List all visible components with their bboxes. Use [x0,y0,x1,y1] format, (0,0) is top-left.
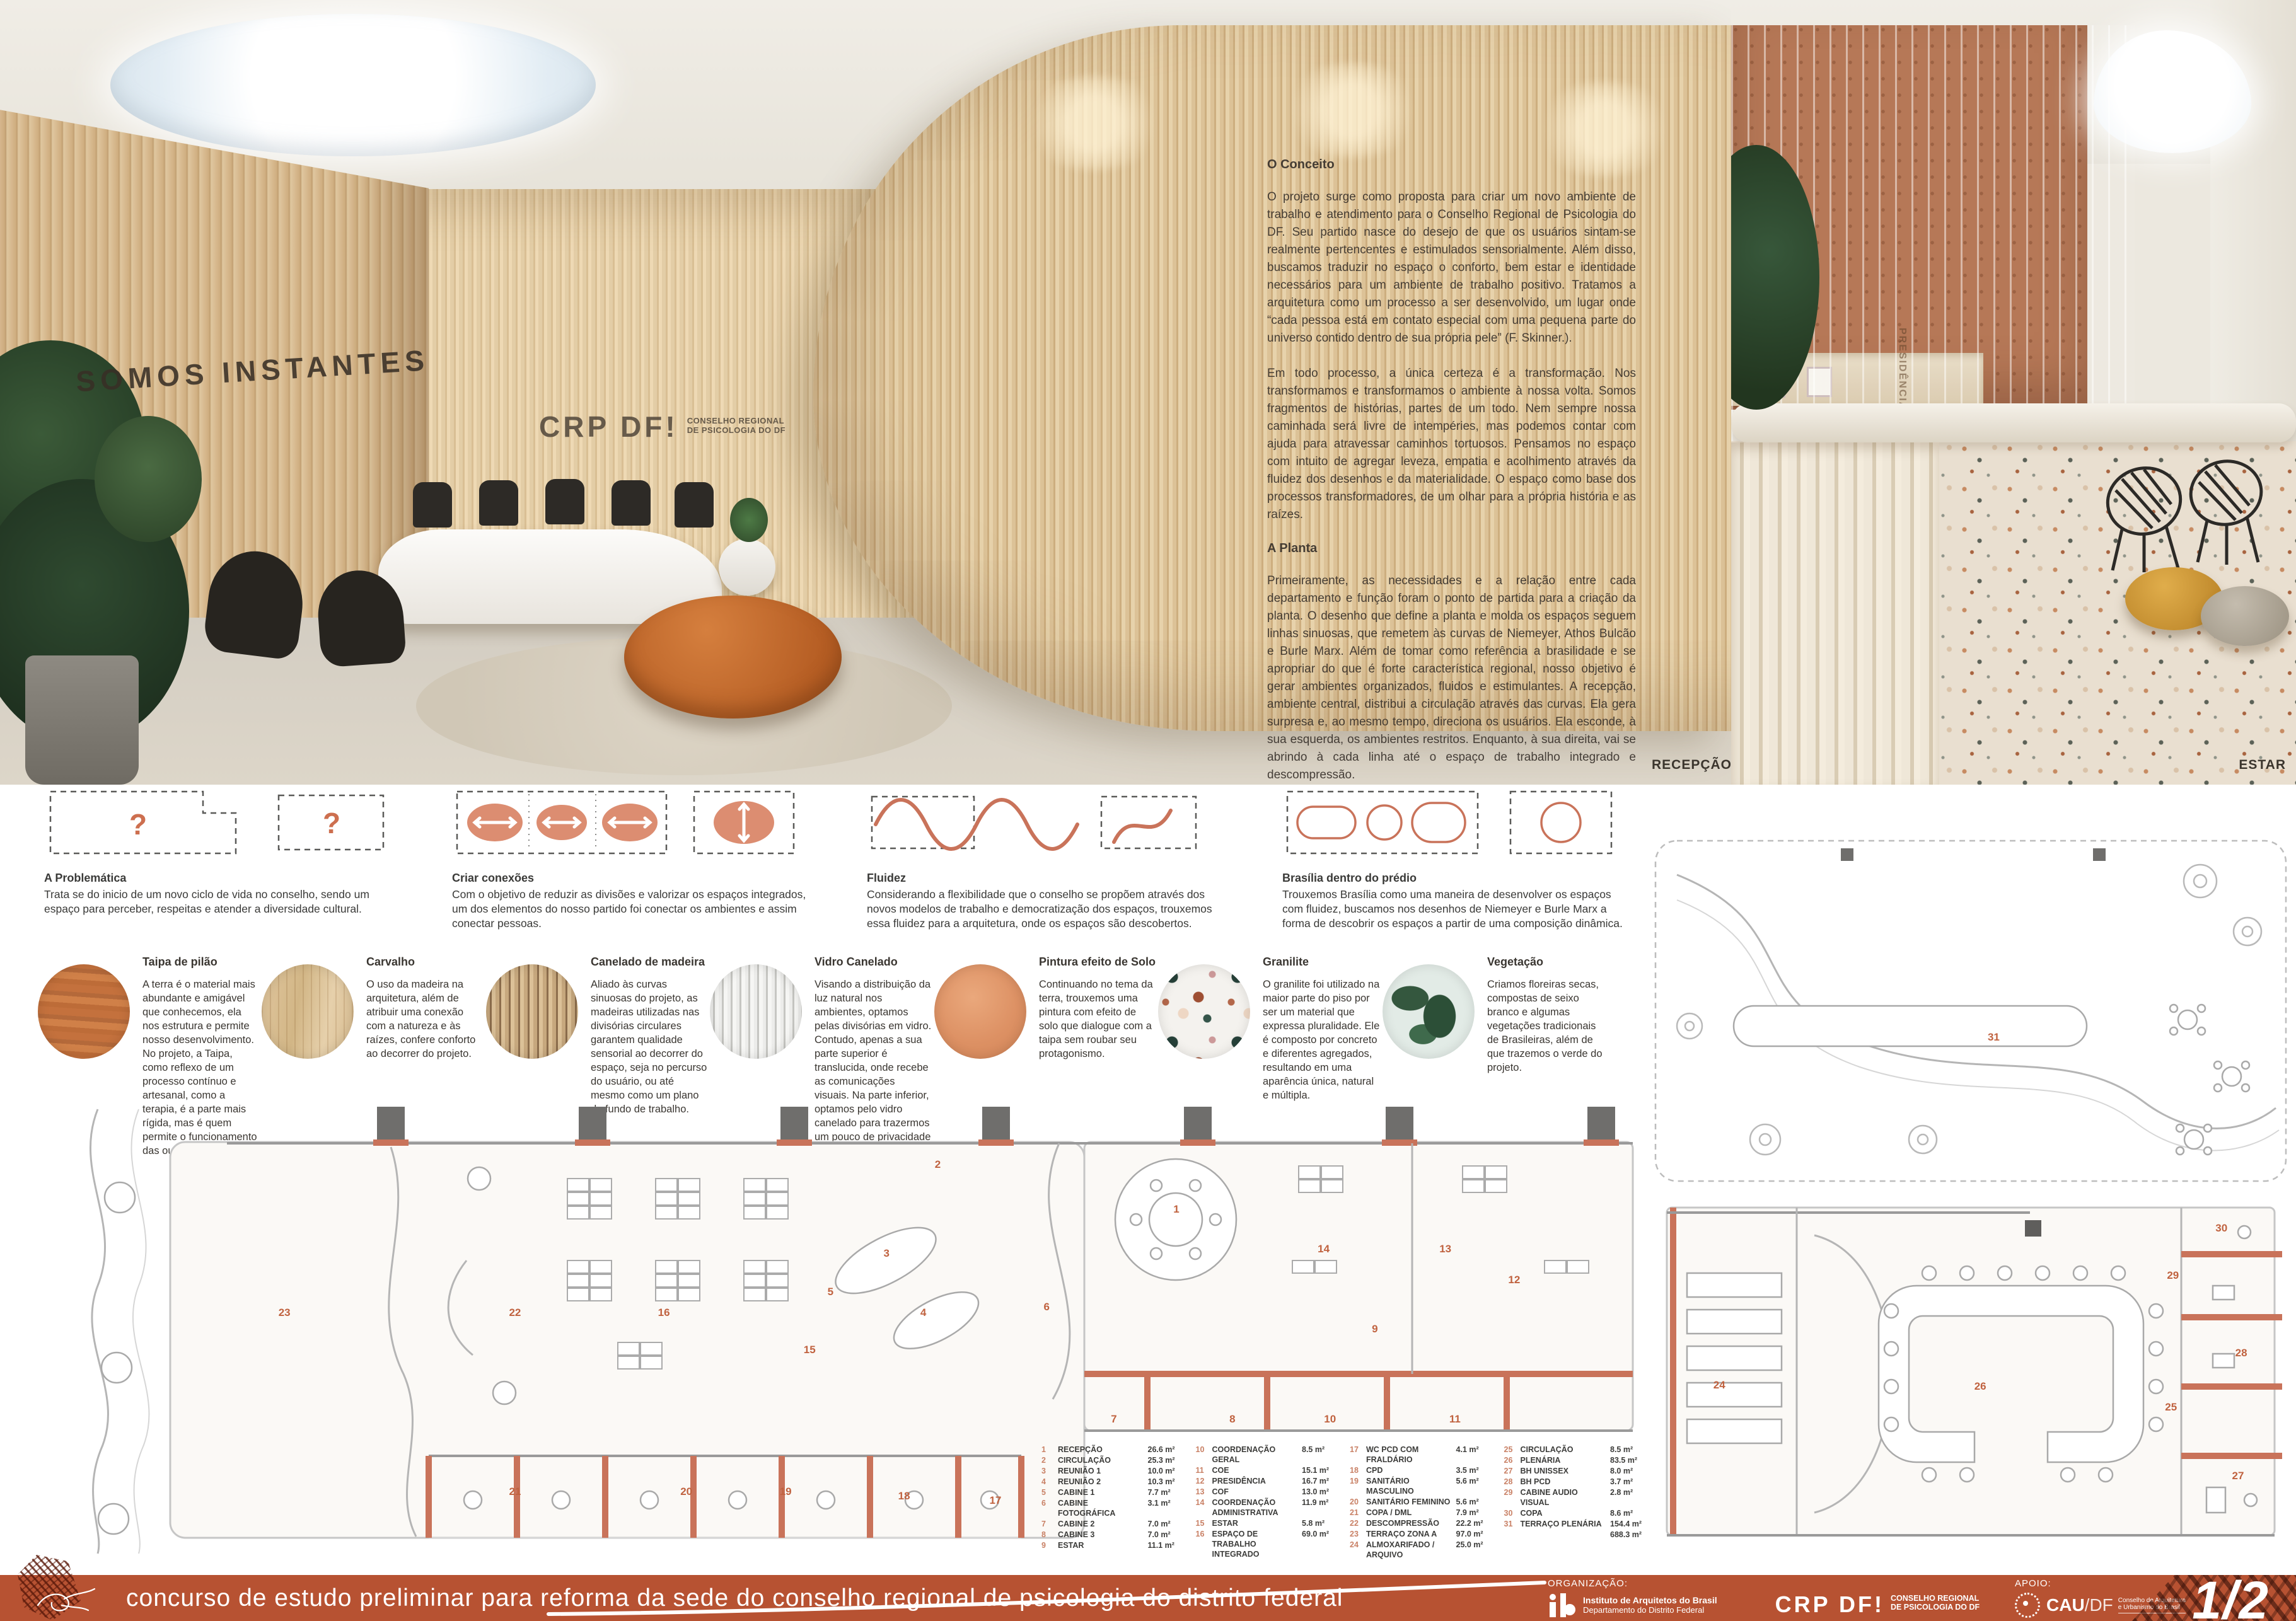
room-number: 7 [1111,1413,1116,1426]
material-swatch-carvalho [262,964,354,1059]
estar-label: ESTAR [2217,758,2286,773]
legend-row: 1RECEPÇÃO26.6 m² [1041,1445,1185,1455]
svg-text:?: ? [129,808,147,841]
room-number: 1 [1173,1203,1179,1216]
legend-row: 25CIRCULAÇÃO8.5 m² [1504,1445,1647,1455]
terrace-plan: 31 [1652,837,2290,1185]
footer-bar: concurso de estudo preliminar para refor… [0,1575,2296,1621]
concept-paragraph: O projeto surge como proposta para criar… [1267,188,1636,347]
ceiling-light-glow [1021,76,1166,170]
diagram-fluidez [867,787,1203,860]
svg-text:?: ? [323,807,340,839]
room-number: 13 [1439,1243,1451,1255]
room-number: 27 [2232,1470,2244,1482]
room-number: 22 [509,1307,521,1319]
concept-title: O Conceito [1267,158,1636,172]
oval-skylight [110,14,596,156]
caption-brasilia: Brasília dentro do prédioTrouxemos Brasí… [1282,871,1633,931]
cau-wordmark: CAU/DF [2046,1595,2113,1615]
iab-name: Instituto de Arquitetos do Brasil [1583,1595,1717,1605]
side-table [719,539,775,596]
legend-row: 29CABINE AUDIO VISUAL2.8 m² [1504,1487,1647,1508]
legend-row: 26PLENÁRIA83.5 m² [1504,1455,1647,1465]
material-title: Vegetação [1487,955,1604,969]
room-number: 5 [828,1286,833,1298]
legend-row: 22DESCOMPRESSÃO22.2 m² [1350,1518,1493,1528]
legend-row: 24ALMOXARIFADO / ARQUIVO25.0 m² [1350,1540,1493,1560]
material-swatch-canelado [486,964,578,1059]
plant-foliage [95,416,202,542]
legend-row: 30COPA8.6 m² [1504,1508,1647,1518]
room-number: 25 [2165,1401,2177,1414]
material-title: Pintura efeito de Solo [1039,955,1156,969]
orange-pouf [624,596,842,718]
material-item: Carvalho O uso da madeira na arquitetura… [262,955,484,1061]
material-text: Continuando no tema da terra, trouxemos … [1039,978,1156,1061]
planta-title: A Planta [1267,541,1636,556]
material-text: Criamos floreiras secas, compostas de se… [1487,978,1604,1075]
material-swatch-vidro [710,964,802,1059]
ceiling-light-glow [1280,63,1425,158]
crp-df-logo-subtext: CONSELHO REGIONAL DE PSICOLOGIA DO DF [687,416,786,435]
room-number: 31 [1988,1031,2000,1044]
curved-railing [1731,403,2296,442]
material-title: Canelado de madeira [591,955,708,969]
reception-chair [675,482,714,528]
room-number: 3 [883,1247,889,1260]
room-number: 26 [1974,1380,1986,1393]
material-text: O granilite foi utilizado na maior parte… [1263,978,1380,1102]
crp-df-wordmark: CRP DF! [1775,1591,1884,1618]
material-text: O uso da madeira na arquitetura, além de… [366,978,484,1061]
legend-column: 17WC PCD COM FRALDÁRIO4.1 m²18CPD3.5 m²1… [1350,1445,1493,1560]
room-number: 16 [658,1307,670,1319]
room-number: 9 [1372,1323,1377,1335]
brush-swoosh [542,1575,1551,1621]
room-number: 30 [2215,1222,2227,1235]
caption-fluidez: FluidezConsiderando a flexibilidade que … [867,871,1221,931]
legend-row: 19SANITÁRIO MASCULINO5.6 m² [1350,1476,1493,1496]
room-number: 17 [989,1494,1001,1507]
room-number: 14 [1318,1243,1330,1255]
legend-row: 31TERRAÇO PLENÁRIA154.4 m² [1504,1519,1647,1529]
presidencia-glass-label: PRESIDÊNCIA [1896,328,1908,410]
plan-legend: 1RECEPÇÃO26.6 m²2CIRCULAÇÃO25.3 m²3REUNI… [1041,1445,1647,1560]
legend-row: 6CABINE FOTOGRÁFICA3.1 m² [1041,1498,1185,1518]
legend-row: 688.3 m² [1504,1530,1647,1540]
reception-label: RECEPÇÃO [1652,758,1727,773]
render-reception: SOMOS INSTANTES CRP DF! CONSELHO REGIONA… [0,0,1731,785]
material-swatch-vegetacao [1383,964,1475,1059]
legend-row: 15ESTAR5.8 m² [1196,1518,1339,1528]
colonnade [373,1107,1619,1146]
legend-row: 16ESPAÇO DE TRABALHO INTEGRADO69.0 m² [1196,1529,1339,1559]
material-text: Aliado às curvas sinuosas do projeto, as… [591,978,708,1116]
desk-plant [730,498,768,542]
legend-row: 9ESTAR11.1 m² [1041,1540,1185,1550]
crp-df-wall-logo: CRP DF! CONSELHO REGIONAL DE PSICOLOGIA … [539,410,786,444]
material-title: Taipa de pilão [142,955,260,969]
room-number: 4 [920,1307,926,1319]
reception-chair [612,480,651,526]
legend-row: 17WC PCD COM FRALDÁRIO4.1 m² [1350,1445,1493,1465]
legend-row: 7CABINE 27.0 m² [1041,1519,1185,1529]
iab-icon [1548,1592,1575,1617]
room-number: 15 [804,1344,816,1356]
legend-row: 28BH PCD3.7 m² [1504,1477,1647,1487]
material-swatch-pintura [934,964,1026,1059]
legend-column: 1RECEPÇÃO26.6 m²2CIRCULAÇÃO25.3 m²3REUNI… [1041,1445,1185,1560]
material-item: Granilite O granilite foi utilizado na m… [1158,955,1380,1102]
legend-row: 5CABINE 17.7 m² [1041,1487,1185,1497]
material-title: Granilite [1263,955,1380,969]
material-title: Vidro Canelado [815,955,932,969]
room-number: 21 [509,1485,521,1498]
plenary-plan: 24252627282930 [1652,1185,2290,1550]
legend-row: 23TERRAÇO ZONA A97.0 m² [1350,1529,1493,1539]
legend-row: 14COORDENAÇÃO ADMINISTRATIVA11.9 m² [1196,1497,1339,1518]
legend-row: 2CIRCULAÇÃO25.3 m² [1041,1455,1185,1465]
page-number: 1/2 [2192,1570,2270,1621]
planta-paragraph: Primeiramente, as necessidades e a relaç… [1267,572,1636,784]
room-number: 19 [780,1485,792,1498]
legend-row: 20SANITÁRIO FEMININO5.6 m² [1350,1497,1493,1507]
iab-logo: Instituto de Arquitetos do Brasil Depart… [1548,1592,1717,1617]
legend-row: 10COORDENAÇÃO GERAL8.5 m² [1196,1445,1339,1465]
crp-df-subtext: CONSELHO REGIONAL DE PSICOLOGIA DO DF [1891,1594,1980,1612]
concept-paragraph: Em todo processo, a única certeza é a tr… [1267,365,1636,524]
legend-row: 27BH UNISSEX8.0 m² [1504,1466,1647,1476]
legend-row: 18CPD3.5 m² [1350,1465,1493,1475]
grey-pouf [2201,586,2289,646]
slat-balustrade [1731,442,1939,785]
room-number: 6 [1043,1301,1049,1313]
iab-sub: Departamento do Distrito Federal [1583,1605,1717,1615]
room-number: 24 [1713,1379,1725,1392]
cau-emblem-icon [2015,1593,2040,1618]
room-number: 23 [279,1307,291,1319]
room-number: 10 [1324,1413,1336,1426]
reception-chair [545,479,584,524]
crp-df-footer-logo: CRP DF! CONSELHO REGIONAL DE PSICOLOGIA … [1775,1591,1980,1618]
reception-chair [413,482,452,528]
room-number: 8 [1229,1413,1235,1426]
room-number: 12 [1508,1274,1520,1286]
diagram-conexoes [452,787,810,860]
legend-row: 11COE15.1 m² [1196,1465,1339,1475]
concept-text-block: O Conceito O projeto surge como proposta… [1267,158,1636,785]
legend-row: 4REUNIÃO 210.3 m² [1041,1477,1185,1487]
legend-column: 25CIRCULAÇÃO8.5 m²26PLENÁRIA83.5 m²27BH … [1504,1445,1647,1560]
organization-block: ORGANIZAÇÃO: Instituto de Arquitetos do … [1548,1578,1980,1618]
presentation-board: SOMOS INSTANTES CRP DF! CONSELHO REGIONA… [0,0,2296,1621]
legend-column: 10COORDENAÇÃO GERAL8.5 m²11COE15.1 m²12P… [1196,1445,1339,1560]
render-estar: PRESIDÊNCIA ESTAR [1731,0,2296,785]
reception-chair [479,480,518,526]
legend-row: 21COPA / DML7.9 m² [1350,1508,1493,1518]
material-swatch-granilite [1158,964,1250,1059]
legend-row: 12PRESIDÊNCIA16.7 m² [1196,1476,1339,1486]
apoio-label: APOIO: [2015,1578,2186,1589]
diagram-brasilia [1282,787,1619,860]
caption-problematica: A ProblemáticaTrata se do inicio de um n… [44,871,398,916]
diagram-problematica: ? ? [44,787,391,860]
room-number: 11 [1449,1413,1461,1426]
material-item: Canelado de madeira Aliado às curvas sin… [486,955,708,1116]
material-title: Carvalho [366,955,484,969]
room-number: 18 [898,1490,910,1503]
legend-row: 8CABINE 37.0 m² [1041,1530,1185,1540]
room-number: 2 [935,1158,941,1171]
bird-sketch-icon [33,1586,102,1615]
material-item: Pintura efeito de Solo Continuando no te… [934,955,1156,1061]
legend-row: 13COF13.0 m² [1196,1487,1339,1497]
crp-df-logo-text: CRP DF! [539,410,678,444]
planter-pot [25,655,139,785]
room-number: 20 [680,1485,692,1498]
room-number: 28 [2235,1347,2247,1359]
material-swatch-taipa [38,964,130,1059]
room-number: 29 [2167,1269,2179,1282]
organization-label: ORGANIZAÇÃO: [1548,1578,1980,1589]
material-item: Vegetação Criamos floreiras secas, compo… [1383,955,1604,1075]
legend-row: 3REUNIÃO 110.0 m² [1041,1466,1185,1476]
caption-conexoes: Criar conexõesCom o objetivo de reduzir … [452,871,818,931]
